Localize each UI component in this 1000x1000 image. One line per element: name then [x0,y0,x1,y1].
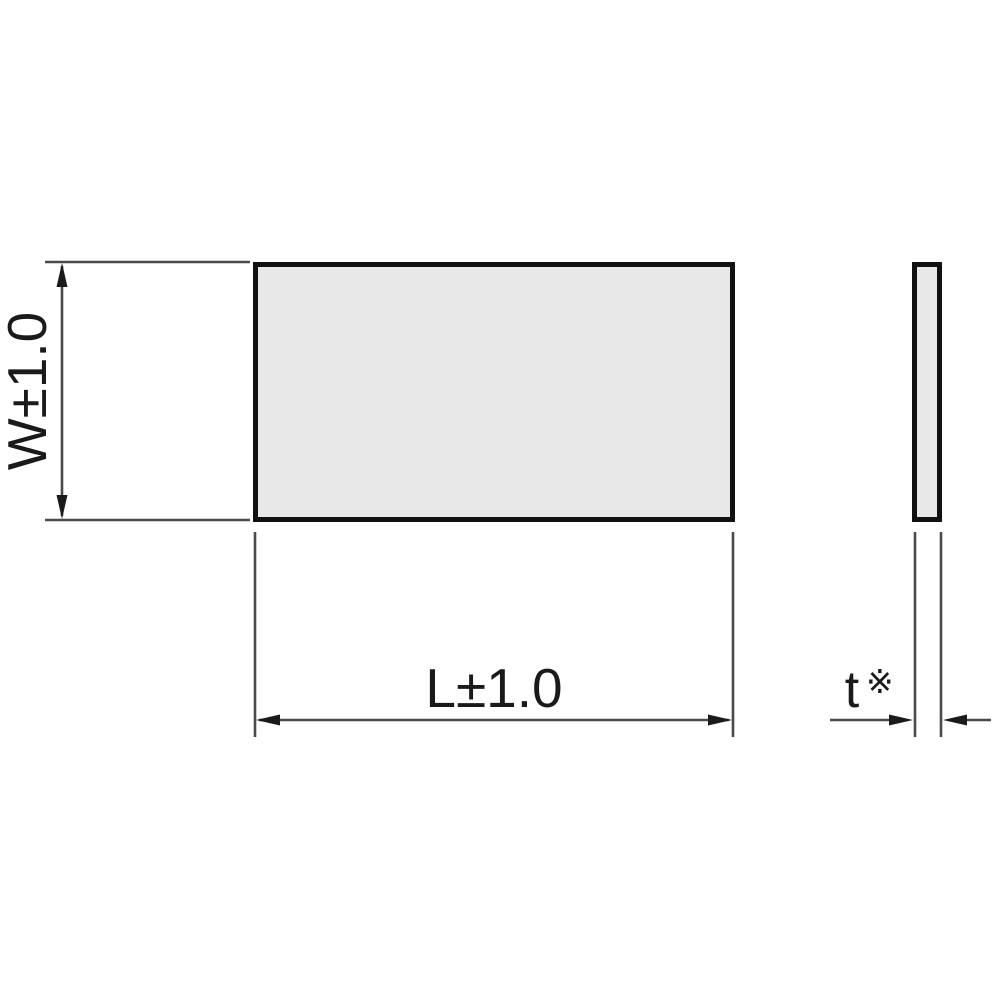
length-dimension-group: L±1.0 [255,532,733,737]
arrow-left-icon [256,715,280,726]
plate-side-view [915,265,940,520]
arrow-left-icon [943,715,967,726]
arrow-up-icon [57,263,68,287]
thickness-dimension-label: t [845,661,860,719]
thickness-reference-mark: ※ [866,663,894,700]
thickness-dimension-group: t ※ [830,532,991,737]
plate-front-view [256,265,733,520]
width-dimension-group: W±1.0 [0,262,250,520]
arrow-right-icon [708,715,732,726]
length-dimension-label: L±1.0 [425,657,562,719]
dimension-drawing: W±1.0 L±1.0 t ※ [0,0,1000,1000]
arrow-down-icon [57,495,68,519]
width-dimension-label: W±1.0 [0,312,58,471]
drawing-canvas: W±1.0 L±1.0 t ※ [0,0,1000,1000]
arrow-right-icon [889,715,913,726]
